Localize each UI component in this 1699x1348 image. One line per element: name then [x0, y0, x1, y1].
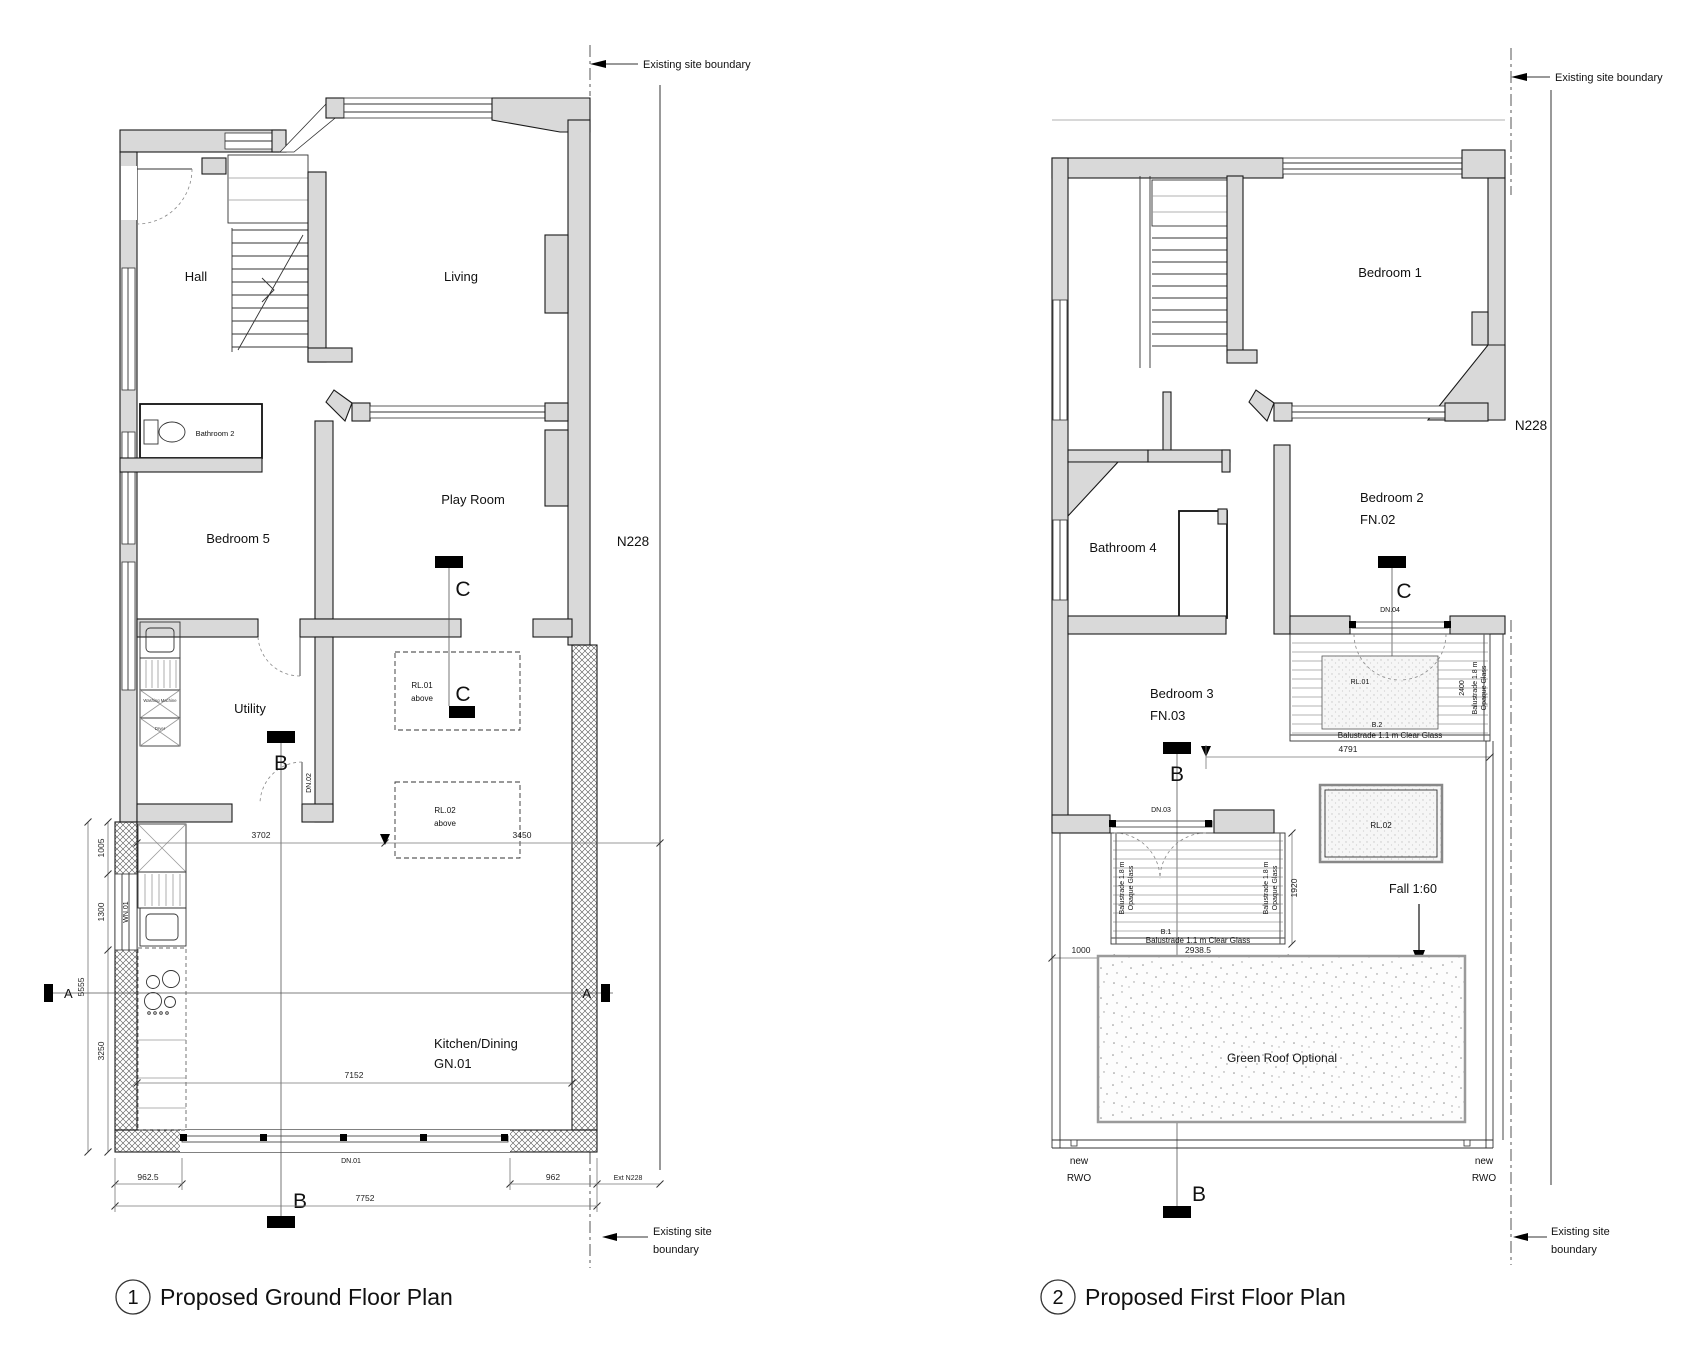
- section-flag: [449, 706, 475, 718]
- section-flag: [435, 556, 463, 568]
- gf-section-b-label-top: B: [274, 752, 288, 775]
- ff-new-rwo-left-line2: RWO: [1067, 1173, 1091, 1184]
- gf-dim-3702: 3702: [252, 830, 271, 840]
- gf-living-label: Living: [444, 269, 478, 284]
- gf-dim-1300: 1300: [96, 902, 106, 921]
- ff-b2-balustrade-clear-label: Balustrade 1.1 m Clear Glass: [1338, 731, 1443, 740]
- gf-utility-walls: [137, 637, 333, 822]
- gf-dn02-label: DN.02: [306, 773, 313, 793]
- gf-dim-3250: 3250: [96, 1041, 106, 1060]
- ff-bedroom2-label: Bedroom 2: [1360, 490, 1424, 505]
- ff-b1-label: B.1: [1161, 929, 1172, 936]
- gf-site-boundary-bottom-line2: boundary: [653, 1244, 699, 1256]
- gf-dim-962-5: 962.5: [137, 1172, 159, 1182]
- gf-section-b: [267, 731, 295, 1228]
- gf-section-c-label-top: C: [455, 578, 470, 601]
- gf-rooflight-rl02: [395, 782, 520, 858]
- gf-dim-1005: 1005: [96, 838, 106, 857]
- drawing-sheet: Existing site boundary N228: [0, 0, 1699, 1348]
- gf-dim-7152: 7152: [345, 1070, 364, 1080]
- gf-kitchen-fixtures: [138, 824, 186, 1130]
- ff-green-roof-label: Green Roof Optional: [1227, 1051, 1337, 1065]
- ff-site-boundary-bottom-line1: Existing site: [1551, 1226, 1610, 1238]
- ff-new-rwo-left-line1: new: [1070, 1156, 1089, 1167]
- section-flag: [1163, 742, 1191, 754]
- gf-dryer-label: Dryer: [155, 726, 166, 731]
- ff-site-boundary-bottom-line2: boundary: [1551, 1244, 1597, 1256]
- ff-bathroom4-label: Bathroom 4: [1089, 540, 1156, 555]
- gf-dim-5555: 5555: [76, 977, 86, 996]
- gf-stairs: [228, 155, 352, 362]
- section-flag: [1378, 556, 1406, 568]
- ff-rl02-label: RL.02: [1370, 821, 1392, 830]
- section-flag: [267, 731, 295, 743]
- ff-dim-2400: 2400: [1459, 680, 1466, 696]
- ff-bedroom3-label: Bedroom 3: [1150, 686, 1214, 701]
- gf-dim-7752: 7752: [356, 1193, 375, 1203]
- ff-b2-label: B.2: [1372, 722, 1383, 729]
- ff-new-rwo-right-line2: RWO: [1472, 1173, 1496, 1184]
- gf-rl01-above-label: above: [411, 694, 433, 703]
- plan2-number: 2: [1052, 1287, 1063, 1309]
- gf-section-c-label-bottom: C: [455, 683, 470, 706]
- section-flag: [267, 1216, 295, 1228]
- ff-section-b-label-bottom: B: [1192, 1183, 1206, 1206]
- gf-kitchen-code-label: GN.01: [434, 1056, 472, 1071]
- ff-bedroom3-code-label: FN.03: [1150, 708, 1185, 723]
- ff-b1-balustrade-opaque-right2: Opaque Glass: [1272, 865, 1279, 910]
- ff-n228-label: N228: [1515, 418, 1547, 433]
- ff-fall-label: Fall 1:60: [1389, 882, 1437, 896]
- section-flag: [1163, 1206, 1191, 1218]
- gf-bathroom2-label: Bathroom 2: [196, 429, 235, 438]
- ff-bedroom1-label: Bedroom 1: [1358, 265, 1422, 280]
- gf-kitchen-label: Kitchen/Dining: [434, 1036, 518, 1051]
- ff-b1-balustrade-opaque-right1: Balustrade 1.8 m: [1263, 861, 1270, 914]
- ff-rl01-label: RL.01: [1351, 679, 1370, 686]
- ff-b2-balustrade-opaque-label2: Opaque Glass: [1481, 665, 1488, 710]
- gf-site-boundary-lines: [590, 45, 660, 1268]
- gf-boundary-arrow-bottom-icon: [602, 1233, 648, 1241]
- ground-floor-plan: Existing site boundary N228: [44, 45, 751, 1268]
- ff-bedroom2-code-label: FN.02: [1360, 512, 1395, 527]
- ff-dim-1000: 1000: [1072, 945, 1091, 955]
- plan-titles: 1 Proposed Ground Floor Plan 2 Proposed …: [116, 1280, 1346, 1314]
- ff-dn03-label: DN.03: [1151, 807, 1171, 814]
- ff-green-roof: [1098, 956, 1465, 1122]
- gf-boundary-arrow-top-icon: [590, 60, 638, 68]
- section-flag: [44, 984, 53, 1002]
- ff-section-b-label-top: B: [1170, 763, 1184, 786]
- plan1-title: Proposed Ground Floor Plan: [160, 1284, 453, 1310]
- gf-utility-label: Utility: [234, 701, 266, 716]
- first-floor-plan: Existing site boundary N228: [1049, 48, 1664, 1265]
- ff-boundary-arrow-top-icon: [1511, 73, 1550, 81]
- gf-dn01-label: DN.01: [341, 1158, 361, 1165]
- gf-section-a-label-right: A: [582, 986, 591, 1001]
- ff-stairs: [1140, 176, 1257, 368]
- ff-dn04-label: DN.04: [1380, 607, 1400, 614]
- ff-new-rwo-right-line1: new: [1475, 1156, 1494, 1167]
- gf-playroom-label: Play Room: [441, 492, 505, 507]
- gf-wn01-label: WN.01: [123, 901, 130, 923]
- gf-dim-962: 962: [546, 1172, 560, 1182]
- ff-b1-balustrade-clear-label: Balustrade 1.1 m Clear Glass: [1146, 936, 1251, 945]
- gf-dim-ext-n228: Ext N228: [614, 1175, 643, 1182]
- ff-b1-balustrade-opaque-left1: Balustrade 1.8 m: [1119, 861, 1126, 914]
- ff-site-boundary-label-top: Existing site boundary: [1555, 72, 1663, 84]
- ff-b2-balustrade-opaque-label1: Balustrade 1.8 m: [1472, 661, 1479, 714]
- gf-washing-machine-label: Washing Machine: [143, 698, 177, 703]
- floor-plans-svg: Existing site boundary N228: [0, 0, 1699, 1348]
- gf-site-boundary-bottom-line1: Existing site: [653, 1226, 712, 1238]
- ff-site-boundary-lines: [1511, 48, 1551, 1265]
- gf-rl02-label: RL.02: [434, 806, 456, 815]
- section-flag: [601, 984, 610, 1002]
- gf-dim-3450: 3450: [513, 830, 532, 840]
- ff-boundary-arrow-bottom-icon: [1513, 1233, 1547, 1241]
- gf-bedroom5-label: Bedroom 5: [206, 531, 270, 546]
- ff-balcony-b1: [1111, 833, 1285, 944]
- gf-front-door: [137, 169, 192, 224]
- ff-dim-2938-5: 2938.5: [1185, 945, 1211, 955]
- gf-middle-walls: [120, 390, 572, 676]
- gf-n228-label: N228: [617, 534, 649, 549]
- gf-rl02-above-label: above: [434, 819, 456, 828]
- gf-rl01-label: RL.01: [411, 681, 433, 690]
- plan2-title: Proposed First Floor Plan: [1085, 1284, 1346, 1310]
- gf-section-a-label-left: A: [64, 986, 73, 1001]
- gf-hall-label: Hall: [185, 269, 208, 284]
- gf-section-b-label-bottom: B: [293, 1190, 307, 1213]
- ff-dim-4791: 4791: [1339, 744, 1358, 754]
- gf-site-boundary-label-top: Existing site boundary: [643, 59, 751, 71]
- plan1-number: 1: [127, 1287, 138, 1309]
- ff-dim-1920: 1920: [1289, 878, 1299, 897]
- ff-section-c-label-top: C: [1396, 580, 1411, 603]
- ff-b1-balustrade-opaque-left2: Opaque Glass: [1128, 865, 1135, 910]
